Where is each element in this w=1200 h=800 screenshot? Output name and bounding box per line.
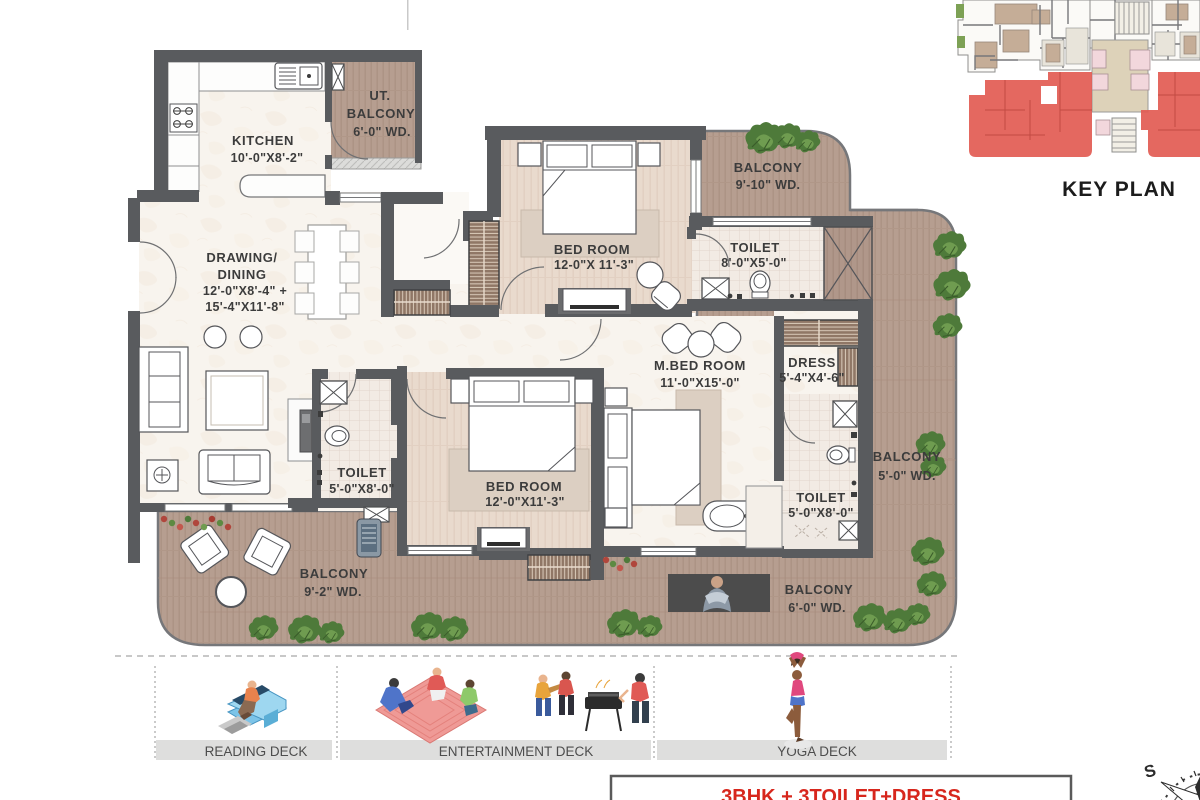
svg-text:M.BED ROOM: M.BED ROOM [654,358,746,373]
svg-text:ENTERTAINMENT DECK: ENTERTAINMENT DECK [439,744,594,759]
svg-text:TOILET: TOILET [730,240,780,255]
svg-text:DRESS: DRESS [788,355,836,370]
svg-text:3BHK + 3TOILET+DRESS: 3BHK + 3TOILET+DRESS [721,786,961,800]
svg-text:DINING: DINING [217,267,266,282]
svg-text:5'-0"X8'-0": 5'-0"X8'-0" [329,482,395,496]
svg-text:KITCHEN: KITCHEN [232,133,294,148]
svg-text:DRAWING/: DRAWING/ [206,250,277,265]
svg-text:12'-0"X11'-3": 12'-0"X11'-3" [485,495,564,509]
svg-text:5'-0" WD.: 5'-0" WD. [878,469,935,483]
svg-text:9'-10" WD.: 9'-10" WD. [736,178,801,192]
svg-text:6'-0" WD.: 6'-0" WD. [353,125,410,139]
svg-text:BALCONY: BALCONY [785,582,853,597]
svg-text:12-0"X 11'-3": 12-0"X 11'-3" [554,258,634,272]
svg-text:BALCONY: BALCONY [347,106,415,121]
svg-text:BED ROOM: BED ROOM [486,479,562,494]
svg-text:READING DECK: READING DECK [205,744,308,759]
svg-text:10'-0"X8'-2": 10'-0"X8'-2" [231,151,304,165]
svg-text:TOILET: TOILET [337,465,387,480]
svg-text:BALCONY: BALCONY [734,160,802,175]
svg-text:BALCONY: BALCONY [300,566,368,581]
svg-text:8'-0"X5'-0": 8'-0"X5'-0" [721,256,787,270]
svg-text:BED ROOM: BED ROOM [554,242,630,257]
svg-text:9'-2" WD.: 9'-2" WD. [304,585,361,599]
svg-text:BALCONY: BALCONY [873,449,941,464]
svg-text:15'-4"X11'-8": 15'-4"X11'-8" [205,300,284,314]
svg-text:5'-0"X8'-0": 5'-0"X8'-0" [788,506,854,520]
svg-text:KEY PLAN: KEY PLAN [1062,178,1176,201]
svg-text:UT.: UT. [369,88,390,103]
svg-text:11'-0"X15'-0": 11'-0"X15'-0" [660,376,739,390]
svg-text:TOILET: TOILET [796,490,846,505]
svg-text:6'-0" WD.: 6'-0" WD. [788,601,845,615]
svg-text:5'-4"X4'-6": 5'-4"X4'-6" [779,371,845,385]
svg-text:12'-0"X8'-4" +: 12'-0"X8'-4" + [203,284,287,298]
